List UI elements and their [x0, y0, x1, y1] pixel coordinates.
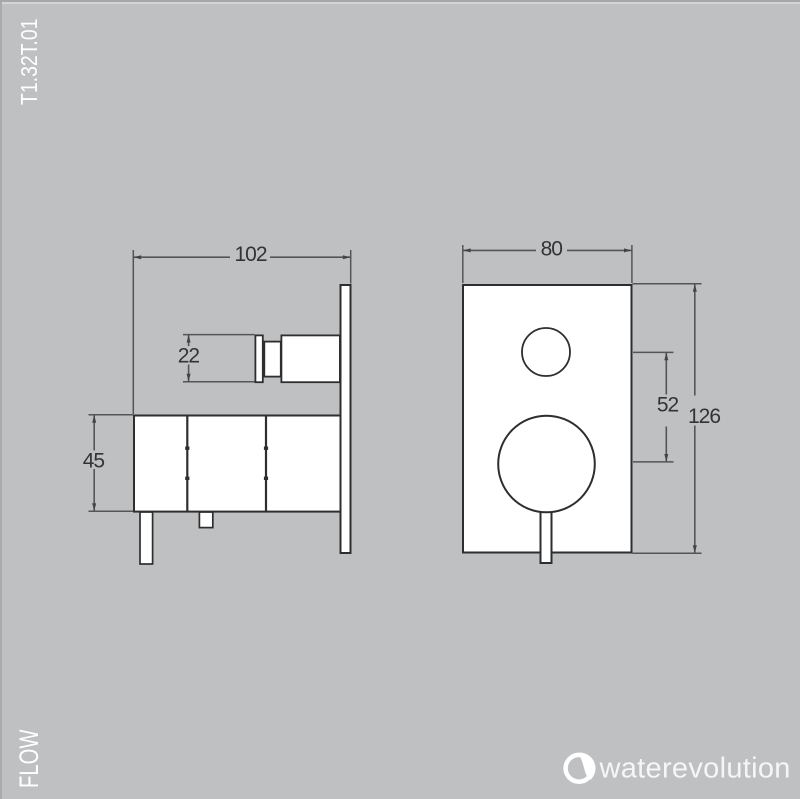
svg-text:126: 126 — [688, 405, 720, 428]
svg-text:80: 80 — [541, 238, 563, 261]
svg-text:45: 45 — [83, 449, 105, 472]
svg-text:102: 102 — [234, 243, 266, 266]
svg-text:waterevolution: waterevolution — [599, 753, 791, 785]
svg-text:22: 22 — [178, 345, 200, 368]
svg-text:52: 52 — [657, 394, 679, 417]
